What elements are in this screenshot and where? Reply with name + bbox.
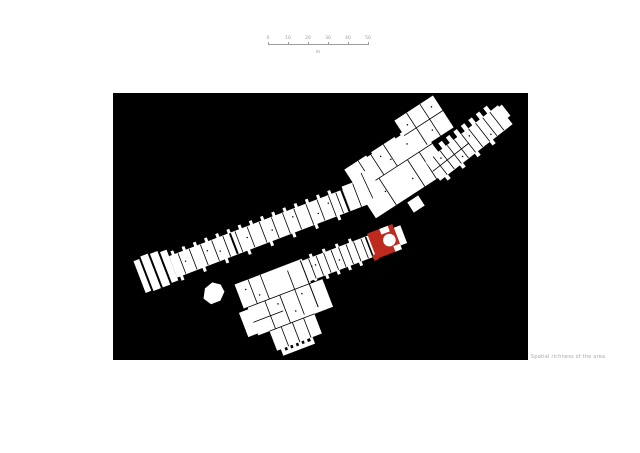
floor-plan-figure bbox=[113, 93, 528, 360]
scale-unit-label: m bbox=[268, 51, 368, 56]
scale-labels: 01020304050 bbox=[268, 37, 368, 44]
plan-canvas bbox=[113, 93, 528, 360]
scale-tick bbox=[368, 42, 369, 45]
scale-tick-label: 50 bbox=[365, 37, 371, 42]
detached-building bbox=[199, 280, 227, 307]
scale-tick bbox=[268, 42, 269, 45]
upper-block bbox=[344, 96, 518, 219]
scale-tick-label: 0 bbox=[267, 37, 270, 42]
scale-tick bbox=[328, 42, 329, 45]
scale-bar: 01020304050 m bbox=[268, 37, 368, 55]
scale-tick bbox=[308, 42, 309, 45]
scale-tick bbox=[348, 42, 349, 45]
scale-line bbox=[268, 44, 368, 49]
scale-tick bbox=[288, 42, 289, 45]
scale-tick-label: 10 bbox=[285, 37, 291, 42]
scale-tick-label: 30 bbox=[325, 37, 331, 42]
figure-caption: Spatial richness of the area bbox=[531, 354, 605, 360]
scale-tick-label: 20 bbox=[305, 37, 311, 42]
scale-tick-label: 40 bbox=[345, 37, 351, 42]
building-complex bbox=[133, 96, 518, 360]
